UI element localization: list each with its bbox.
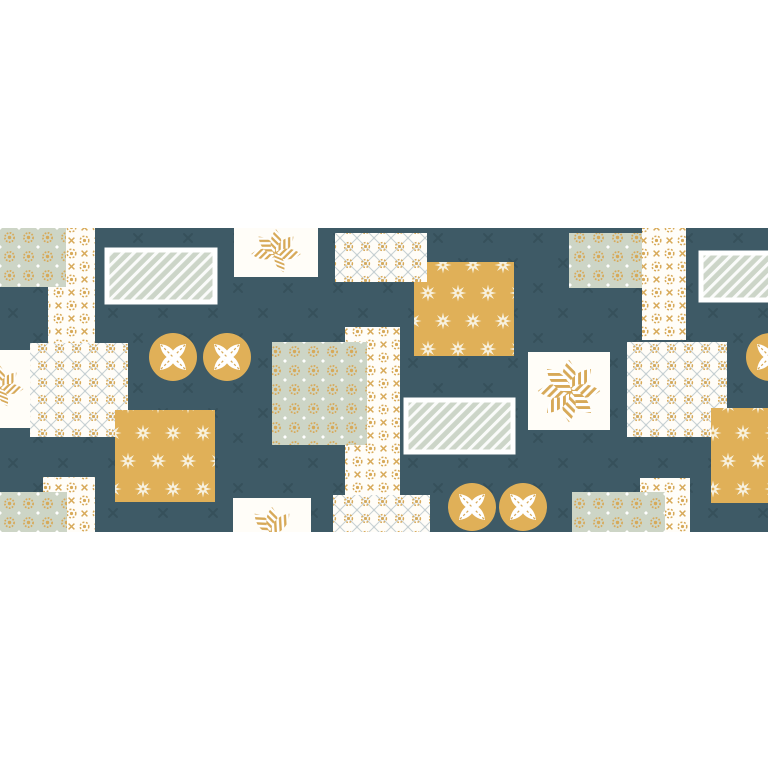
leaf-medallion-2 [203, 333, 251, 381]
striped-rect-top-right [701, 253, 768, 300]
sage-dot-patch-top-left [0, 228, 66, 287]
lattice-patch-bottom [333, 495, 430, 532]
sage-dot-patch-center [272, 342, 367, 445]
mustard-star-patch-left [115, 410, 215, 502]
mustard-star-patch-right [711, 408, 768, 503]
sage-dot-patch-bottom-right [572, 492, 665, 532]
white-floral-strip-top-right [642, 228, 686, 340]
leaf-medallion-1 [149, 333, 197, 381]
snowflake-square-center-right [528, 352, 610, 430]
leaf-square-top [234, 228, 318, 277]
striped-rect-top-left [107, 250, 215, 302]
patch-layer [0, 228, 768, 539]
leaf-medallion-3 [448, 483, 496, 531]
mustard-star-patch-top [414, 262, 514, 356]
leaf-medallion-4 [499, 483, 547, 531]
sage-dot-patch-bottom-left [0, 492, 67, 532]
pattern-swatch-page [0, 0, 768, 768]
striped-rect-center [406, 400, 513, 452]
lattice-patch-top [335, 233, 427, 282]
lattice-patch-left [30, 343, 128, 437]
patchwork-artwork [0, 0, 768, 768]
leaf-square-bottom [233, 498, 311, 539]
